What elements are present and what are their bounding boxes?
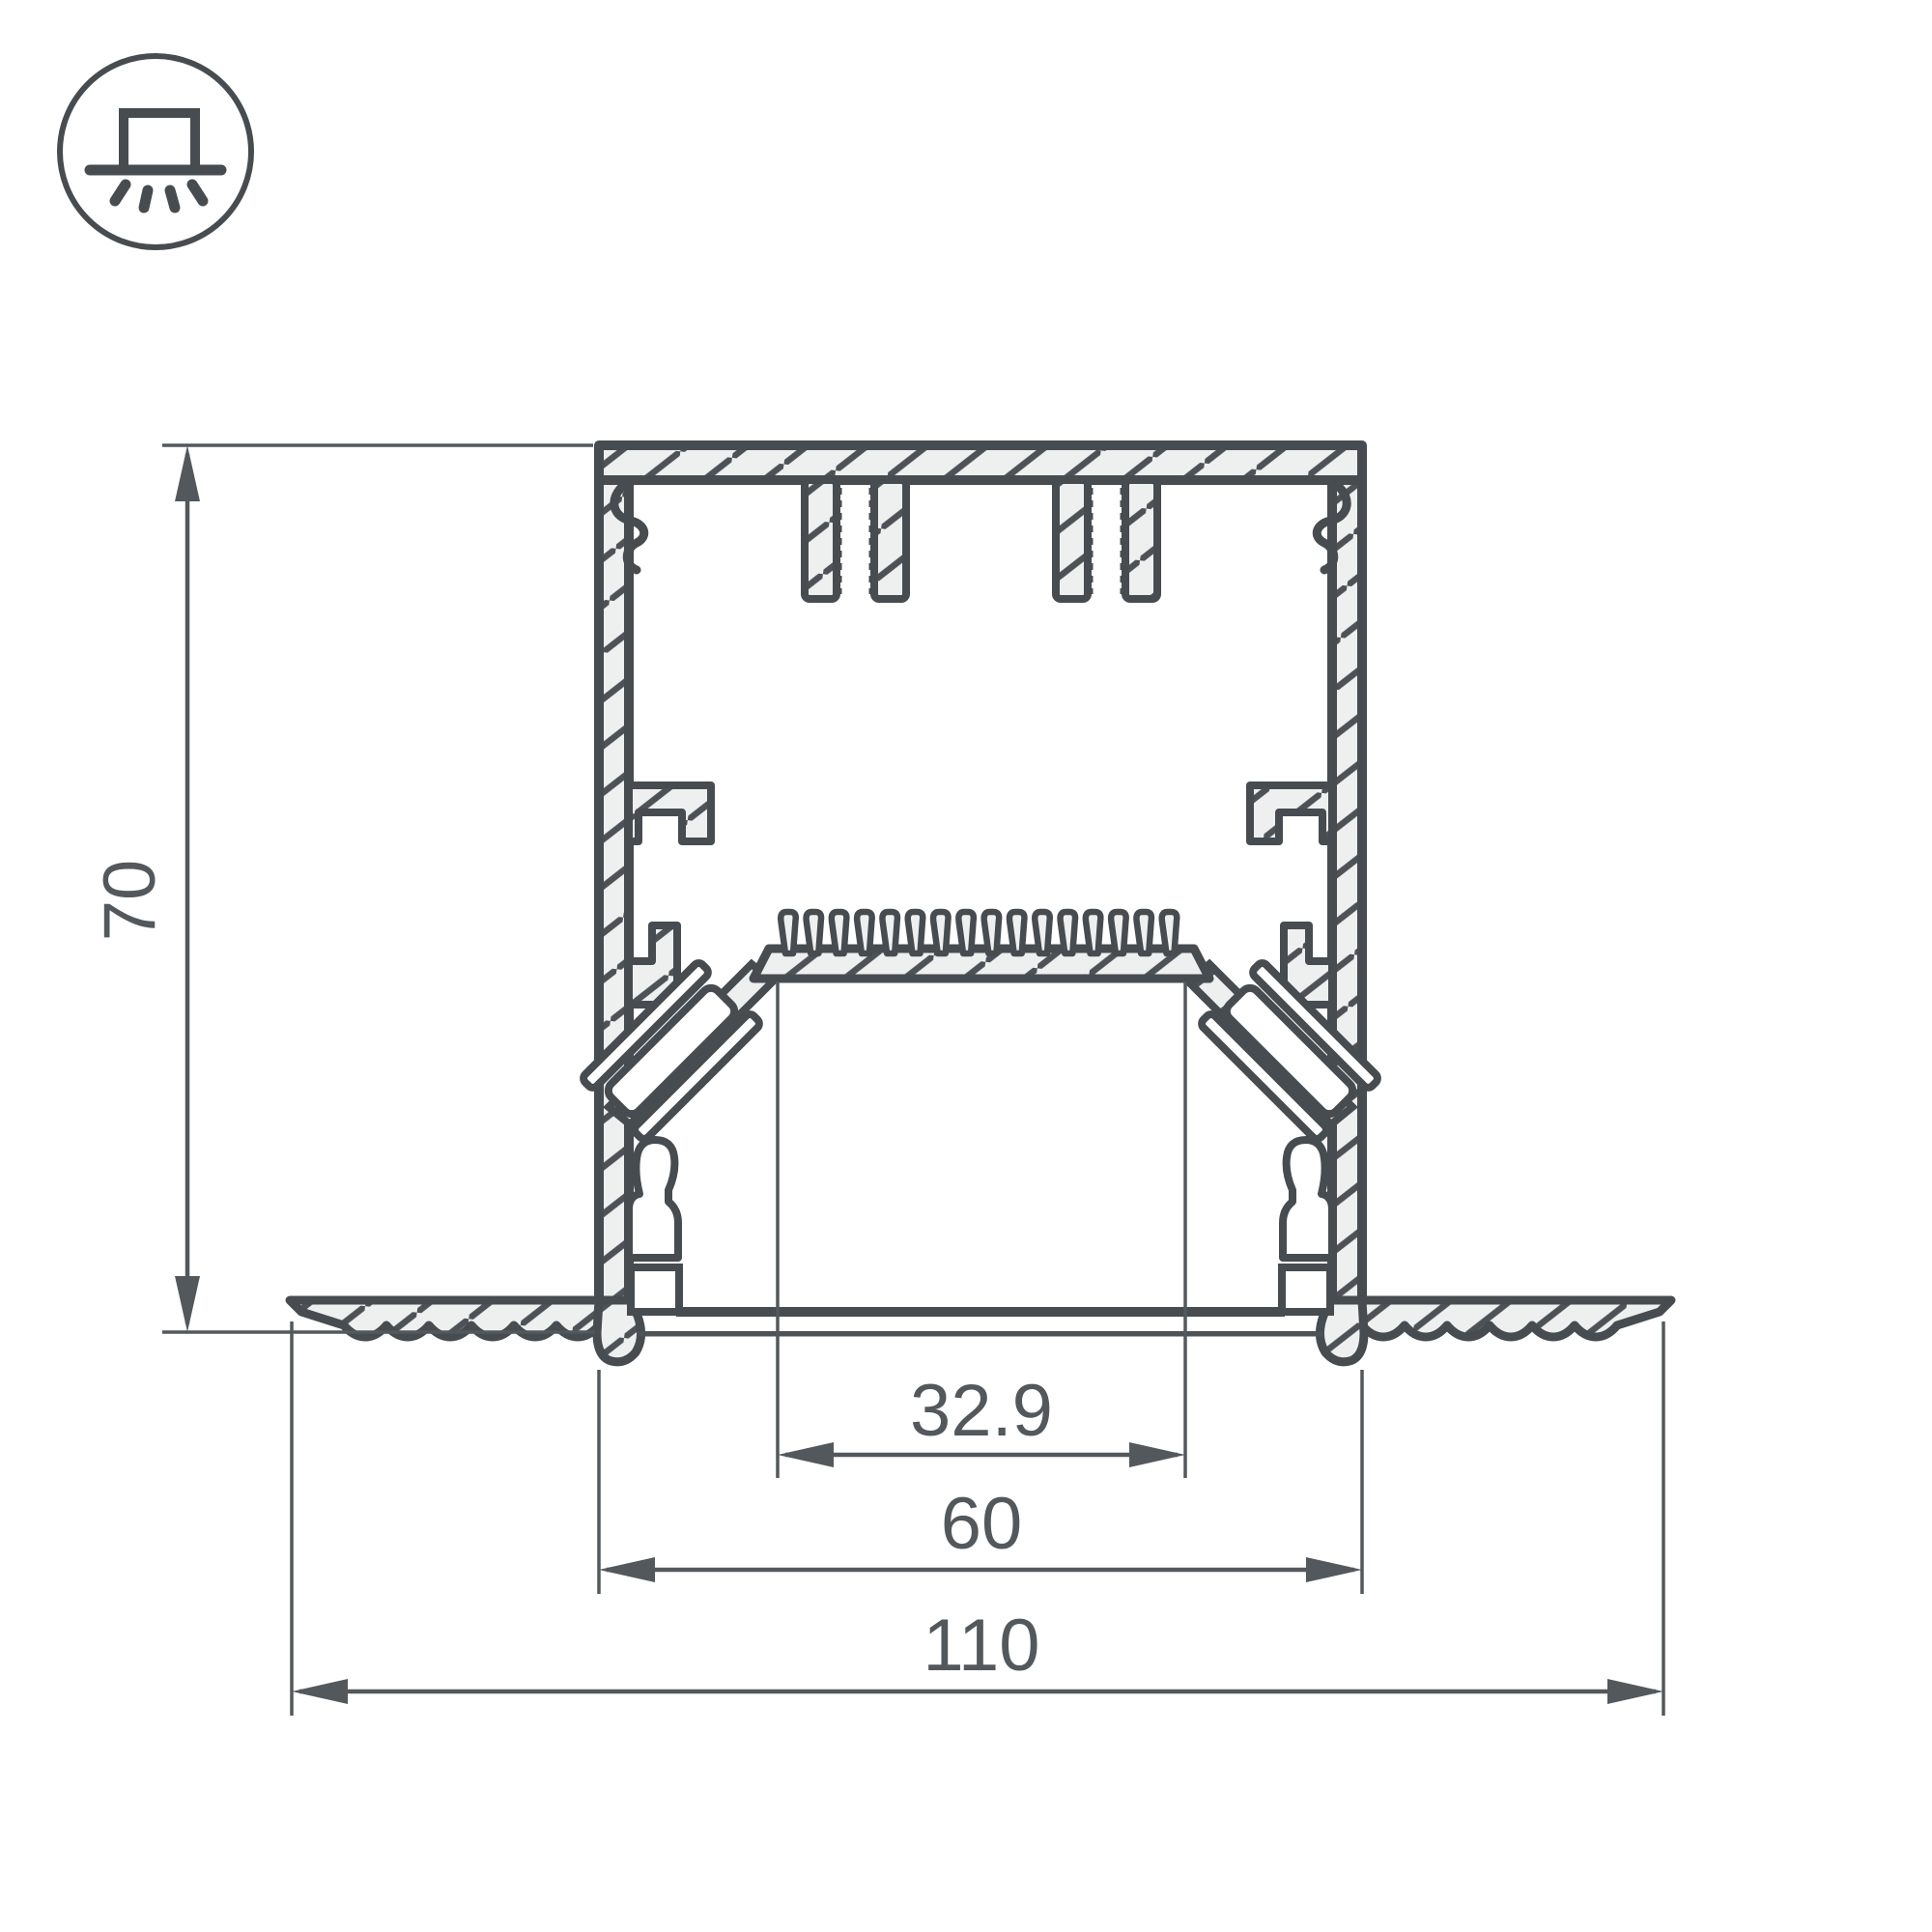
drawing-page: 70 32.9 60 110	[0, 0, 1932, 1932]
arrow-down	[175, 1276, 200, 1332]
heatsink-fin	[1086, 912, 1101, 953]
heatsink-fin	[1009, 912, 1025, 953]
dim-label-height: 70	[89, 860, 171, 942]
diffuser-line	[676, 1307, 1285, 1317]
icon-light-rays	[115, 185, 203, 208]
icon-fixture-box	[124, 113, 195, 170]
heatsink-fin	[1136, 912, 1151, 953]
profile-body	[290, 445, 1671, 1362]
heatsink-fin	[958, 912, 974, 953]
dimension-inner-width-32-9: 32.9	[778, 981, 1185, 1478]
arrow-left	[599, 1557, 655, 1582]
heatsink-fin	[807, 912, 822, 953]
corner-clips	[614, 485, 1347, 570]
arrow-up	[175, 445, 200, 501]
screw-boss-pair-left	[805, 480, 906, 599]
heatsink-fin	[1035, 912, 1050, 953]
dim-label-inner-width: 32.9	[910, 1370, 1053, 1452]
left-wall	[599, 480, 629, 1302]
heatsink-fin	[908, 912, 923, 953]
heatsink-fin	[857, 912, 872, 953]
recessed-mount-light-icon	[60, 56, 251, 247]
led-module	[582, 912, 1380, 1141]
dimensions-layer: 70 32.9 60 110	[89, 445, 1663, 1716]
wing-right	[1362, 1300, 1671, 1337]
right-wall	[1332, 480, 1362, 1302]
ledge-right	[1250, 785, 1332, 841]
heatsink-fin	[1111, 912, 1126, 953]
heatsink-fin	[781, 912, 796, 953]
arrow-right	[1607, 1679, 1663, 1704]
arrow-right	[1129, 1442, 1185, 1467]
heatsink-fin	[933, 912, 949, 953]
heatsink-fin	[984, 912, 1000, 953]
ledge-left	[629, 785, 711, 841]
arrow-left	[292, 1679, 348, 1704]
step-left	[631, 1267, 679, 1312]
screw-boss-pair-right	[1056, 480, 1157, 599]
dim-label-overall-width: 110	[923, 1605, 1039, 1687]
heatsink-fin	[1061, 912, 1076, 953]
heatsink-fin	[832, 912, 847, 953]
dim-label-body-width: 60	[941, 1483, 1023, 1565]
heatsink-fin	[1162, 912, 1178, 953]
hook-right	[1283, 1140, 1332, 1258]
opening-line	[638, 1331, 1323, 1337]
top-wall	[599, 445, 1362, 480]
arrow-right	[1306, 1557, 1362, 1582]
arrow-left	[778, 1442, 834, 1467]
led-profile-section-drawing: 70 32.9 60 110	[0, 0, 1932, 1932]
lower-channel	[629, 1140, 1332, 1337]
hook-left	[629, 1140, 678, 1258]
heatsink-fin	[882, 912, 897, 953]
icon-circle	[60, 56, 251, 247]
step-right	[1282, 1267, 1330, 1312]
dimension-height-70: 70	[89, 445, 595, 1332]
